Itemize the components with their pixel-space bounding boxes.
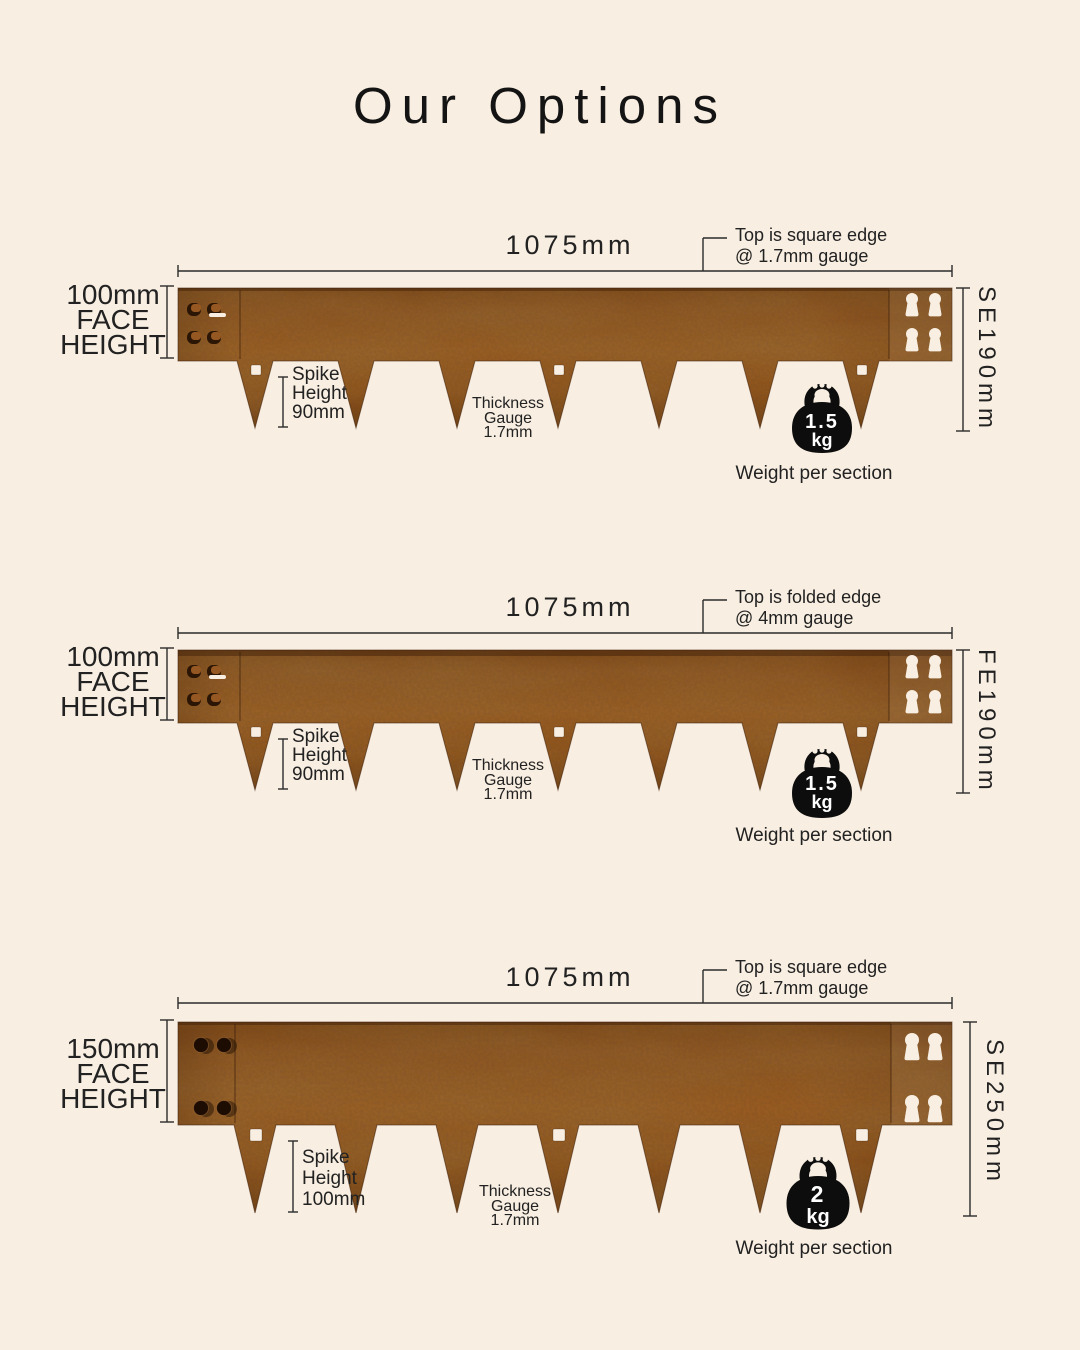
spike-word-2: Height [302, 1168, 365, 1189]
spike-word-1: Spike [292, 727, 347, 746]
spike-word-2: Height [292, 746, 347, 765]
thickness-gauge-label: Thickness Gauge 1.7mm [479, 1185, 551, 1229]
length-dimension-label: 1075mm [505, 592, 634, 623]
weight-caption: Weight per section [735, 463, 892, 485]
face-height-label: 100mm FACE HEIGHT [60, 644, 166, 719]
product-code-label: SE250mm [980, 1033, 1008, 1193]
top-edge-callout: Top is square edge @ 1.7mm gauge [735, 225, 887, 267]
callout-line-2: @ 4mm gauge [735, 608, 881, 629]
face-height-label: 100mm FACE HEIGHT [60, 282, 166, 357]
callout-line-1: Top is square edge [735, 957, 887, 978]
face-height-word-2: HEIGHT [60, 332, 166, 357]
option-section-fe190: 1075mm Top is folded edge @ 4mm gauge 10… [0, 542, 1080, 882]
kettlebell-weight-unit: kg [777, 792, 867, 813]
top-edge-callout: Top is square edge @ 1.7mm gauge [735, 957, 887, 999]
kettlebell-weight-unit: kg [773, 1206, 863, 1229]
thickness-value: 1.7mm [479, 1214, 551, 1229]
thickness-gauge-label: Thickness Gauge 1.7mm [472, 397, 544, 441]
spike-height-label: Spike Height 100mm [302, 1147, 365, 1210]
thickness-value: 1.7mm [472, 788, 544, 803]
face-height-label: 150mm FACE HEIGHT [60, 1036, 166, 1111]
face-height-word-2: HEIGHT [60, 694, 166, 719]
kettlebell-weight-value: 2 [773, 1181, 863, 1208]
kettlebell-weight-unit: kg [777, 430, 867, 451]
spike-word-2: Height [292, 384, 347, 403]
option-section-se190: 1075mm Top is square edge @ 1.7mm gauge … [0, 180, 1080, 520]
spike-height-value: 90mm [292, 765, 347, 784]
length-dimension-label: 1075mm [505, 230, 634, 261]
option-section-se250: 1075mm Top is square edge @ 1.7mm gauge … [0, 912, 1080, 1350]
thickness-gauge-label: Thickness Gauge 1.7mm [472, 759, 544, 803]
spike-height-label: Spike Height 90mm [292, 365, 347, 422]
product-code-label: SE190mm [972, 280, 1000, 440]
callout-line-2: @ 1.7mm gauge [735, 246, 887, 267]
spike-word-1: Spike [302, 1147, 365, 1168]
top-edge-callout: Top is folded edge @ 4mm gauge [735, 587, 881, 629]
face-height-word-2: HEIGHT [60, 1086, 166, 1111]
callout-line-1: Top is folded edge [735, 587, 881, 608]
spike-word-1: Spike [292, 365, 347, 384]
callout-line-1: Top is square edge [735, 225, 887, 246]
thickness-value: 1.7mm [472, 426, 544, 441]
page-title: Our Options [0, 76, 1080, 135]
spike-height-value: 90mm [292, 403, 347, 422]
weight-caption: Weight per section [735, 825, 892, 847]
length-dimension-label: 1075mm [505, 962, 634, 993]
callout-line-2: @ 1.7mm gauge [735, 978, 887, 999]
product-code-label: FE190mm [972, 642, 1000, 802]
spike-height-value: 100mm [302, 1189, 365, 1210]
spike-height-label: Spike Height 90mm [292, 727, 347, 784]
weight-caption: Weight per section [735, 1238, 892, 1260]
